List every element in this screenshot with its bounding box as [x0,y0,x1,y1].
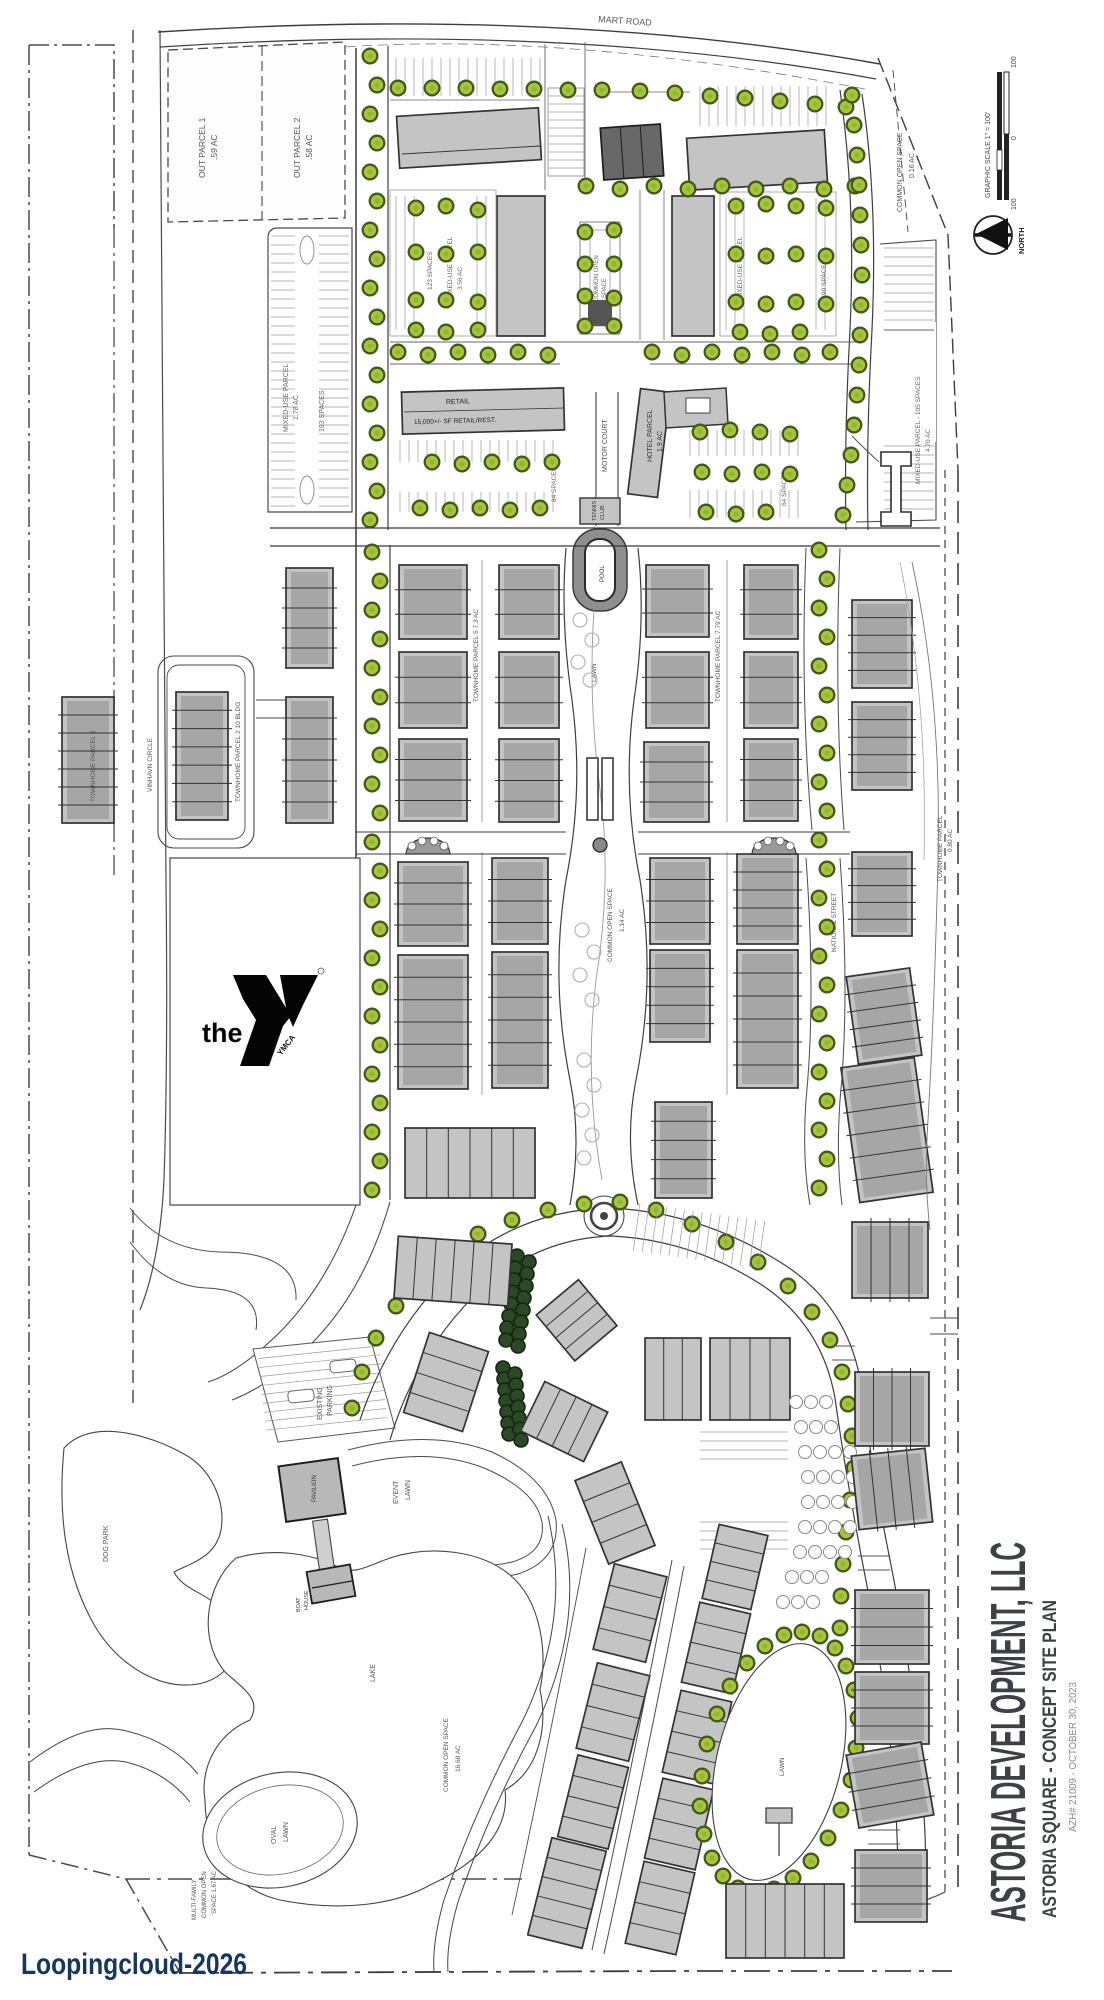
svg-text:1.14 AC: 1.14 AC [619,909,626,932]
svg-text:0: 0 [1011,136,1018,140]
svg-text:COMMON OPEN SPACE: COMMON OPEN SPACE [607,887,614,962]
svg-text:TOWNHOME PARCEL 1: TOWNHOME PARCEL 1 [90,730,97,802]
svg-text:DOG PARK: DOG PARK [103,1525,110,1562]
svg-text:RETAIL: RETAIL [446,398,470,406]
svg-text:90 SPACES: 90 SPACES [821,259,828,295]
svg-text:TOWNHOME PARCEL 2 10 BLDG: TOWNHOME PARCEL 2 10 BLDG [235,702,242,802]
svg-text:4.70 AC: 4.70 AC [925,429,932,452]
svg-text:.58 AC: .58 AC [304,134,314,160]
svg-text:100: 100 [1011,56,1018,68]
svg-text:COMMON OPEN: COMMON OPEN [202,1871,208,1918]
svg-text:NORTH: NORTH [1017,227,1026,254]
svg-text:the: the [202,1018,243,1048]
svg-text:LAWN: LAWN [405,1480,412,1500]
svg-text:193 SPACES: 193 SPACES [319,390,326,432]
svg-text:PAVILION: PAVILION [312,1475,318,1502]
svg-text:OVAL: OVAL [271,1826,278,1844]
svg-text:LAWN: LAWN [283,1822,290,1842]
svg-text:MULTI-FAMILY: MULTI-FAMILY [192,1880,198,1920]
svg-text:EVENT: EVENT [393,1480,400,1504]
svg-text:0.80 AC: 0.80 AC [947,829,954,852]
svg-text:SPACE 1.67 AC: SPACE 1.67 AC [212,1870,218,1914]
svg-text:TENNIS: TENNIS [592,501,598,522]
svg-text:TOWNHOME PARCEL 7.79 AC: TOWNHOME PARCEL 7.79 AC [715,610,722,702]
svg-text:1.78 AC: 1.78 AC [293,395,300,420]
svg-text:OUT PARCEL 2: OUT PARCEL 2 [292,117,302,178]
svg-text:OUT PARCEL 1: OUT PARCEL 1 [197,117,207,178]
svg-text:3.56 AC: 3.56 AC [457,267,464,290]
svg-text:MIXED-USE PARCEL: MIXED-USE PARCEL [447,236,454,300]
svg-text:0.16 AC: 0.16 AC [909,153,916,178]
svg-text:EXISTING: EXISTING [317,1387,324,1420]
svg-text:Loopingcloud-2026: Loopingcloud-2026 [21,1948,247,1981]
svg-text:16.68 AC: 16.68 AC [455,1745,462,1772]
svg-text:CLUB: CLUB [600,505,606,520]
svg-text:TOWNHOME PARCEL 5 7.3 AC: TOWNHOME PARCEL 5 7.3 AC [473,609,480,702]
svg-text:POOL: POOL [600,565,606,582]
svg-text:AZH# 21009 - OCTOBER 30, 2023: AZH# 21009 - OCTOBER 30, 2023 [1068,1682,1079,1832]
svg-text:MOTOR COURT: MOTOR COURT [602,419,609,472]
svg-text:COMMON OPEN: COMMON OPEN [594,255,600,302]
svg-text:HOTEL PARCEL: HOTEL PARCEL [647,409,654,462]
svg-text:HOUSE: HOUSE [304,1590,310,1610]
svg-text:MIXED-USE PARCEL - 105 SPACES: MIXED-USE PARCEL - 105 SPACES [915,376,922,484]
svg-text:123 SPACES: 123 SPACES [427,251,434,290]
svg-text:BOAT: BOAT [296,1597,302,1612]
svg-text:PARKING: PARKING [327,1385,334,1416]
svg-text:MIXED-USE PARCEL: MIXED-USE PARCEL [283,364,290,432]
svg-text:LAWN: LAWN [779,1757,786,1776]
svg-text:ASTORIA SQUARE - CONCEPT SITE: ASTORIA SQUARE - CONCEPT SITE PLAN [1040,1600,1061,1918]
svg-text:LAKE: LAKE [370,1664,377,1682]
svg-text:COMMON OPEN SPACE: COMMON OPEN SPACE [897,132,904,212]
svg-text:MIXED-USE PARCEL: MIXED-USE PARCEL [737,236,744,300]
svg-text:84 SPACES: 84 SPACES [551,466,558,502]
svg-text:GRAPHIC SCALE 1" = 100': GRAPHIC SCALE 1" = 100' [985,112,992,198]
svg-text:.59 AC: .59 AC [209,134,219,160]
svg-text:VINHAVN CIRCLE: VINHAVN CIRCLE [147,737,154,792]
svg-text:100: 100 [1011,198,1018,210]
svg-text:1.9 AC: 1.9 AC [657,431,664,452]
svg-text:ASTORIA DEVELOPMENT, LLC: ASTORIA DEVELOPMENT, LLC [982,1542,1036,1922]
svg-text:COMMON OPEN SPACE: COMMON OPEN SPACE [443,1717,450,1792]
